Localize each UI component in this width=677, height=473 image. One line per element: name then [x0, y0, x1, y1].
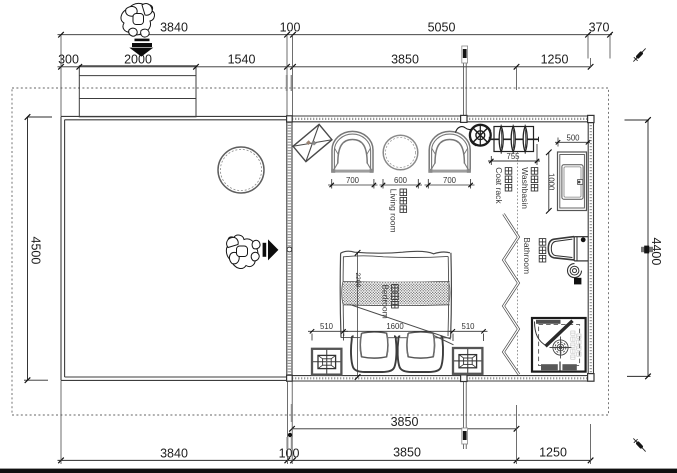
- svg-text:500: 500: [566, 133, 580, 142]
- svg-text:3850: 3850: [391, 415, 419, 429]
- svg-text:2000: 2000: [124, 53, 152, 67]
- svg-text:1600: 1600: [386, 322, 404, 331]
- svg-text:Bedroom: Bedroom: [380, 284, 390, 319]
- svg-text:2200: 2200: [354, 273, 361, 288]
- svg-text:700: 700: [443, 176, 457, 185]
- svg-text:600: 600: [394, 176, 408, 185]
- svg-text:100: 100: [279, 447, 300, 461]
- svg-text:3850: 3850: [391, 53, 419, 67]
- svg-text:4500: 4500: [29, 237, 43, 265]
- svg-text:Bathroom: Bathroom: [522, 237, 532, 274]
- svg-text:3840: 3840: [160, 447, 188, 461]
- svg-text:100: 100: [280, 21, 301, 35]
- svg-text:510: 510: [320, 322, 334, 331]
- svg-text:1540: 1540: [228, 53, 256, 67]
- svg-text:700: 700: [346, 176, 360, 185]
- svg-text:Coat rack: Coat rack: [494, 167, 504, 204]
- svg-text:1250: 1250: [541, 53, 569, 67]
- svg-text:755: 755: [506, 152, 520, 161]
- svg-text:370: 370: [589, 21, 610, 35]
- svg-text:Living room: Living room: [389, 189, 399, 233]
- svg-text:5050: 5050: [428, 21, 456, 35]
- svg-text:Washbasin: Washbasin: [520, 167, 530, 209]
- svg-text:510: 510: [461, 322, 475, 331]
- svg-text:3850: 3850: [393, 445, 421, 459]
- svg-text:1250: 1250: [539, 445, 567, 459]
- svg-text:1000: 1000: [547, 173, 556, 191]
- svg-text:3840: 3840: [160, 21, 188, 35]
